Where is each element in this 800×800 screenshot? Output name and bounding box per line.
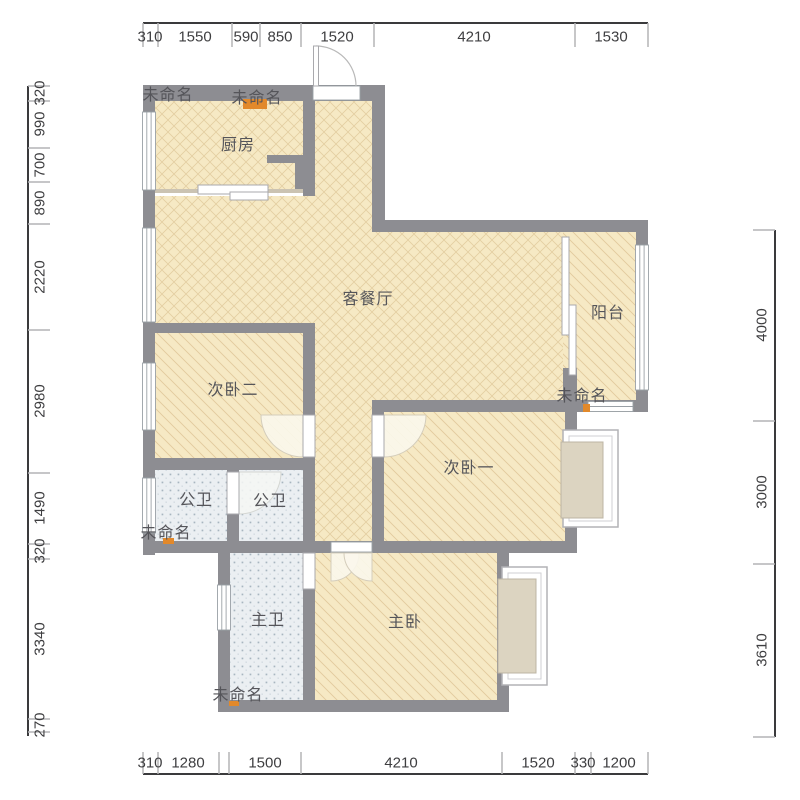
dim-bottom-4: 1520 xyxy=(521,755,554,772)
wall-kitchen-jog-v xyxy=(295,163,315,193)
floor-plan-canvas: 未命名 未命名 厨房 客餐厅 阳台 未命名 次卧二 次卧一 公卫 公卫 未命名 … xyxy=(0,0,800,800)
room-label-master-bath[interactable]: 主卫 xyxy=(251,606,285,630)
wall-bedroom1-top xyxy=(372,400,577,412)
dim-bottom-0: 310 xyxy=(137,755,162,772)
entry-door[interactable] xyxy=(314,46,357,86)
bedroom2-window[interactable] xyxy=(143,363,156,430)
dim-top-0: 310 xyxy=(137,29,162,46)
dim-bottom-5: 330 xyxy=(570,755,595,772)
dim-top-2: 590 xyxy=(233,29,258,46)
room-label-bath-right[interactable]: 公卫 xyxy=(253,487,287,511)
dim-top-3: 850 xyxy=(267,29,292,46)
dim-left-7: 320 xyxy=(32,538,49,563)
room-label-living-dining[interactable]: 客餐厅 xyxy=(342,285,393,309)
dim-left-1: 990 xyxy=(32,111,49,136)
dim-left-9: 270 xyxy=(32,712,49,737)
living-floor-right[interactable] xyxy=(372,232,563,400)
room-label-bedroom2[interactable]: 次卧二 xyxy=(207,376,258,400)
dim-left-0: 320 xyxy=(32,80,49,105)
master-bay-window[interactable] xyxy=(498,567,547,685)
kitchen-window[interactable] xyxy=(143,112,156,190)
dim-right-0: 4000 xyxy=(754,308,771,341)
wall-bedroom2-top xyxy=(143,323,315,333)
room-label-master-bedroom[interactable]: 主卧 xyxy=(388,608,422,632)
living-window[interactable] xyxy=(143,228,156,322)
balcony-window[interactable] xyxy=(636,245,649,390)
wall-kitchen-jog-h xyxy=(267,155,315,163)
room-label-bedroom1[interactable]: 次卧一 xyxy=(443,454,494,478)
dim-top-1: 1550 xyxy=(178,29,211,46)
dim-right-1: 3000 xyxy=(754,475,771,508)
dim-bottom-3: 4210 xyxy=(384,755,417,772)
room-label-bath-left[interactable]: 公卫 xyxy=(179,486,213,510)
bedroom1-bay-window[interactable] xyxy=(561,430,618,527)
wall-bedroom2-bottom xyxy=(143,458,315,470)
wall-balcony-top xyxy=(372,220,648,232)
entry-door-opening[interactable] xyxy=(313,86,360,100)
room-label-unnamed-2[interactable]: 未命名 xyxy=(231,84,282,108)
room-label-unnamed-4[interactable]: 未命名 xyxy=(140,519,191,543)
dim-right-2: 3610 xyxy=(754,633,771,666)
master-door-opening[interactable] xyxy=(331,542,372,552)
wall-top-right-corner xyxy=(372,85,385,232)
room-label-unnamed-3[interactable]: 未命名 xyxy=(556,382,607,406)
master-bath-window[interactable] xyxy=(218,585,231,630)
dim-left-3: 890 xyxy=(32,190,49,215)
dim-left-8: 3340 xyxy=(32,622,49,655)
corridor-floor[interactable] xyxy=(315,400,372,541)
dim-top-5: 4210 xyxy=(457,29,490,46)
dim-top-4: 1520 xyxy=(320,29,353,46)
room-label-kitchen[interactable]: 厨房 xyxy=(221,131,255,155)
dim-left-6: 1490 xyxy=(32,491,49,524)
dim-top-6: 1530 xyxy=(594,29,627,46)
dim-left-2: 700 xyxy=(32,152,49,177)
room-label-unnamed-5[interactable]: 未命名 xyxy=(212,681,263,705)
dim-bottom-6: 1200 xyxy=(602,755,635,772)
dim-bottom-2: 1500 xyxy=(248,755,281,772)
dim-left-5: 2980 xyxy=(32,384,49,417)
dim-bottom-1: 1280 xyxy=(171,755,204,772)
room-label-unnamed-1[interactable]: 未命名 xyxy=(142,81,193,105)
floor-plan-drawing xyxy=(0,0,800,800)
dim-left-4: 2220 xyxy=(32,260,49,293)
room-label-balcony[interactable]: 阳台 xyxy=(591,299,625,323)
